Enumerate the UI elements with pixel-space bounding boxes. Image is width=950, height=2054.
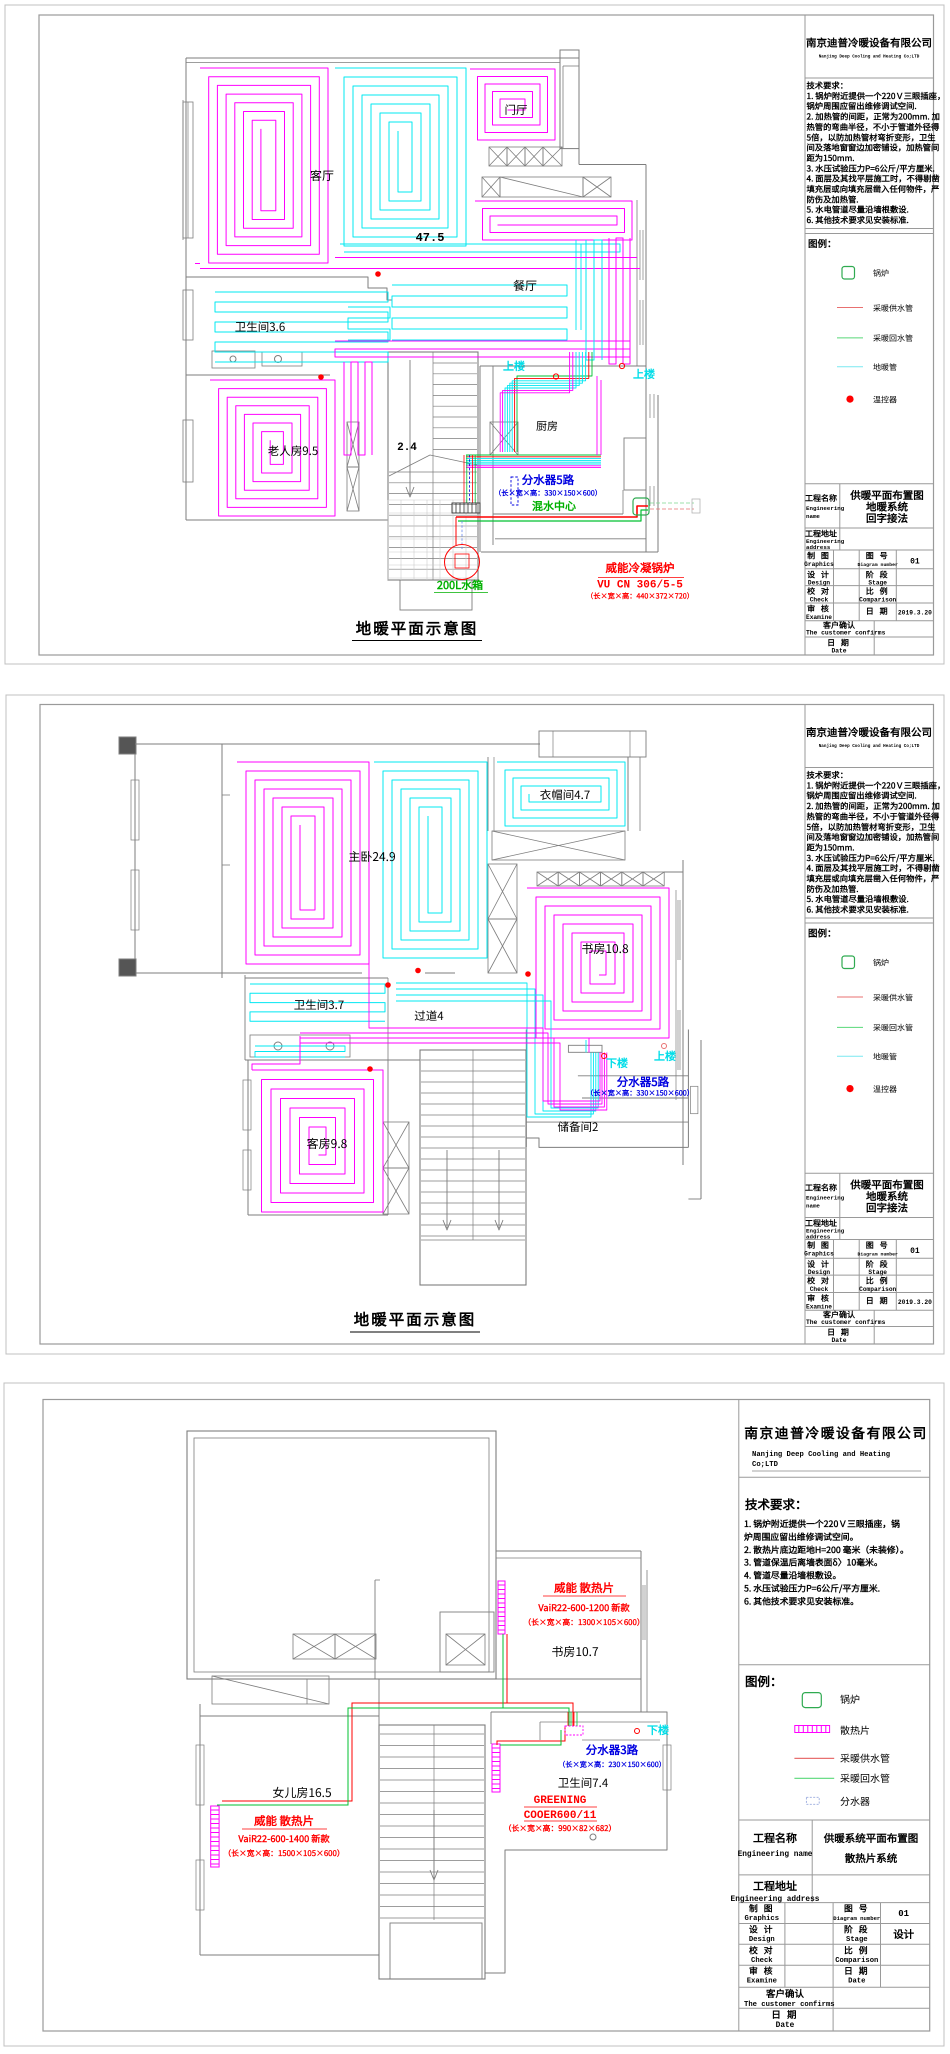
svg-text:6. 其他技术要求见安装标准。: 6. 其他技术要求见安装标准。: [744, 1594, 859, 1607]
svg-text:（长×宽×高：1500×105×600）: （长×宽×高：1500×105×600）: [223, 1848, 344, 1859]
svg-text:回字接法: 回字接法: [866, 1201, 908, 1216]
svg-text:2019.3.20: 2019.3.20: [898, 1299, 932, 1306]
svg-text:Date: Date: [831, 648, 846, 655]
svg-text:制 图: 制 图: [749, 1902, 775, 1915]
svg-text:日 期: 日 期: [771, 2007, 798, 2021]
svg-text:name: name: [806, 513, 820, 520]
svg-text:01: 01: [898, 1909, 909, 1919]
svg-text:锅炉: 锅炉: [840, 1691, 860, 1706]
svg-text:上楼: 上楼: [633, 366, 655, 382]
svg-text:女儿房16.5: 女儿房16.5: [272, 1784, 332, 1801]
svg-text:威能 散热片: 威能 散热片: [554, 1580, 614, 1596]
svg-text:过道4: 过道4: [414, 1008, 444, 1024]
svg-text:地暖平面示意图: 地暖平面示意图: [354, 1308, 477, 1330]
svg-text:上楼: 上楼: [503, 358, 525, 374]
svg-text:分水器5路: 分水器5路: [522, 472, 575, 488]
svg-text:储备间2: 储备间2: [558, 1119, 599, 1135]
svg-text:老人房9.5: 老人房9.5: [268, 443, 318, 459]
svg-text:Check: Check: [810, 597, 829, 604]
svg-text:散热片: 散热片: [840, 1722, 870, 1737]
svg-text:客厅: 客厅: [310, 167, 334, 184]
svg-text:门厅: 门厅: [505, 102, 528, 118]
svg-text:VaiR22-600-1400 新款: VaiR22-600-1400 新款: [237, 1831, 330, 1845]
svg-text:（长×宽×高：330×150×600）: （长×宽×高：330×150×600）: [494, 489, 602, 499]
svg-text:南京迪普冷暖设备有限公司: 南京迪普冷暖设备有限公司: [806, 725, 932, 740]
svg-text:上楼: 上楼: [654, 1048, 676, 1064]
svg-text:温控器: 温控器: [873, 1084, 897, 1095]
svg-text:技术要求：: 技术要求：: [745, 1494, 808, 1513]
svg-text:（长×宽×高：330×150×600）: （长×宽×高：330×150×600）: [586, 1089, 694, 1099]
svg-text:（长×宽×高：440×372×720）: （长×宽×高：440×372×720）: [586, 592, 694, 602]
svg-text:01: 01: [910, 558, 920, 567]
svg-text:2.4: 2.4: [397, 442, 417, 454]
svg-text:供暖系统平面布置图: 供暖系统平面布置图: [823, 1831, 919, 1846]
svg-text:书房10.7: 书房10.7: [551, 1643, 599, 1660]
svg-text:Engineering: Engineering: [806, 1195, 845, 1202]
svg-text:校 对: 校 对: [749, 1943, 775, 1956]
svg-text:采暖供水管: 采暖供水管: [873, 993, 913, 1004]
svg-text:Comparison: Comparison: [859, 597, 896, 604]
svg-text:图例：: 图例：: [745, 1671, 783, 1690]
svg-text:餐厅: 餐厅: [513, 277, 537, 294]
svg-text:3. 管道保温后离墙表面δ〉10毫米。: 3. 管道保温后离墙表面δ〉10毫米。: [744, 1556, 883, 1569]
svg-text:下楼: 下楼: [647, 1722, 669, 1738]
svg-text:设计: 设计: [893, 1927, 914, 1942]
svg-text:The customer confirms: The customer confirms: [806, 1319, 886, 1326]
svg-text:200L水箱: 200L水箱: [437, 577, 483, 593]
svg-text:工程名称: 工程名称: [805, 493, 837, 504]
svg-text:图 号: 图 号: [844, 1902, 870, 1915]
svg-text:衣帽间4.7: 衣帽间4.7: [540, 787, 590, 803]
svg-text:VU CN 306/5-5: VU CN 306/5-5: [597, 580, 683, 592]
svg-text:地暖管: 地暖管: [873, 362, 897, 373]
svg-text:1. 锅炉附近提供一个220Ｖ三眼插座，锅: 1. 锅炉附近提供一个220Ｖ三眼插座，锅: [744, 1517, 900, 1530]
svg-text:设 计: 设 计: [807, 1259, 831, 1270]
svg-text:图 号: 图 号: [866, 551, 890, 562]
svg-text:Graphics: Graphics: [804, 561, 834, 568]
svg-text:图 号: 图 号: [866, 1240, 890, 1251]
svg-text:卫生间3.6: 卫生间3.6: [235, 319, 285, 335]
svg-text:分水器: 分水器: [840, 1793, 870, 1808]
svg-text:采暖供水管: 采暖供水管: [840, 1750, 890, 1765]
svg-text:阶 段: 阶 段: [844, 1923, 870, 1936]
svg-text:2019.3.20: 2019.3.20: [898, 610, 932, 617]
svg-text:Date: Date: [831, 1337, 846, 1344]
svg-text:Diagram number: Diagram number: [858, 562, 898, 568]
svg-text:工程名称: 工程名称: [805, 1183, 837, 1194]
svg-text:客户确认: 客户确认: [765, 1986, 805, 2000]
svg-text:审 核: 审 核: [807, 604, 831, 615]
svg-text:（长×宽×高：230×150×600）: （长×宽×高：230×150×600）: [558, 1760, 666, 1770]
svg-text:Date: Date: [776, 2022, 795, 2030]
svg-text:书房10.8: 书房10.8: [581, 940, 629, 957]
svg-text:比 例: 比 例: [866, 1276, 890, 1287]
svg-text:回字接法: 回字接法: [866, 511, 908, 526]
svg-text:温控器: 温控器: [873, 395, 897, 406]
svg-text:审 核: 审 核: [749, 1964, 775, 1977]
svg-text:南京迪普冷暖设备有限公司: 南京迪普冷暖设备有限公司: [744, 1422, 928, 1442]
svg-text:卫生间3.7: 卫生间3.7: [294, 997, 344, 1013]
svg-text:采暖供水管: 采暖供水管: [873, 303, 913, 314]
svg-text:GREENING: GREENING: [534, 1795, 587, 1807]
svg-text:2. 散热片底边距地H=200 毫米（未装修）。: 2. 散热片底边距地H=200 毫米（未装修）。: [744, 1543, 909, 1556]
svg-text:Check: Check: [810, 1286, 829, 1293]
svg-text:散热片系统: 散热片系统: [845, 1851, 898, 1866]
svg-text:日 期: 日 期: [866, 606, 890, 617]
svg-text:锅炉: 锅炉: [873, 958, 889, 969]
svg-text:校 对: 校 对: [807, 586, 831, 597]
svg-text:比 例: 比 例: [866, 586, 890, 597]
svg-text:Co;LTD: Co;LTD: [752, 1461, 779, 1469]
svg-text:Engineering name: Engineering name: [738, 1851, 813, 1859]
svg-text:校 对: 校 对: [807, 1276, 831, 1287]
svg-text:地暖管: 地暖管: [873, 1052, 897, 1063]
svg-text:下楼: 下楼: [606, 1055, 628, 1071]
svg-text:Nanjing Deep Cooling and Heati: Nanjing Deep Cooling and Heating: [752, 1451, 890, 1459]
svg-text:制 图: 制 图: [807, 551, 831, 562]
svg-text:威能冷凝锅炉: 威能冷凝锅炉: [606, 560, 675, 576]
svg-text:VaiR22-600-1200 新款: VaiR22-600-1200 新款: [537, 1600, 630, 1614]
svg-text:锅炉: 锅炉: [873, 268, 889, 279]
svg-text:制 图: 制 图: [807, 1240, 831, 1251]
svg-text:厨房: 厨房: [536, 418, 558, 434]
svg-text:Comparison: Comparison: [859, 1286, 896, 1293]
svg-text:4. 管道尽量沿墙根敷设。: 4. 管道尽量沿墙根敷设。: [743, 1569, 841, 1582]
svg-text:客房9.8: 客房9.8: [307, 1135, 348, 1152]
svg-text:Diagram number: Diagram number: [858, 1252, 898, 1258]
svg-text:Graphics: Graphics: [804, 1251, 834, 1258]
svg-text:日 期: 日 期: [844, 1964, 870, 1977]
svg-text:The customer confirms: The customer confirms: [806, 630, 886, 637]
svg-text:地暖平面示意图: 地暖平面示意图: [356, 617, 479, 639]
svg-text:Engineering address: Engineering address: [731, 1896, 820, 1904]
svg-text:混水中心: 混水中心: [532, 498, 576, 514]
svg-text:主卧24.9: 主卧24.9: [348, 848, 395, 865]
svg-text:采暖回水管: 采暖回水管: [840, 1770, 890, 1785]
svg-text:设 计: 设 计: [807, 569, 831, 580]
svg-text:Date: Date: [848, 1978, 865, 1986]
svg-text:6. 其他技术要求见安装标准.: 6. 其他技术要求见安装标准.: [807, 214, 909, 226]
svg-text:6. 其他技术要求见安装标准.: 6. 其他技术要求见安装标准.: [807, 904, 909, 916]
svg-text:Diagram number: Diagram number: [833, 1915, 880, 1922]
svg-text:工程地址: 工程地址: [753, 1878, 797, 1894]
svg-text:Nanjing Deep Cooling and Heati: Nanjing Deep Cooling and Heating Co;LTD: [819, 55, 920, 60]
svg-text:图例：: 图例：: [808, 236, 837, 250]
svg-text:Nanjing Deep Cooling and Heati: Nanjing Deep Cooling and Heating Co;LTD: [819, 744, 920, 749]
svg-text:炉周围应留出维修调试空间。: 炉周围应留出维修调试空间。: [744, 1530, 858, 1543]
svg-text:name: name: [806, 1203, 820, 1210]
svg-text:日 期: 日 期: [866, 1296, 890, 1307]
svg-text:南京迪普冷暖设备有限公司: 南京迪普冷暖设备有限公司: [806, 36, 932, 51]
svg-text:阶 段: 阶 段: [866, 569, 890, 580]
svg-text:卫生间7.4: 卫生间7.4: [558, 1775, 609, 1791]
svg-text:设 计: 设 计: [749, 1923, 775, 1936]
svg-text:比 例: 比 例: [844, 1943, 870, 1956]
svg-text:（长×宽×高：1300×105×600）: （长×宽×高：1300×105×600）: [523, 1617, 644, 1628]
svg-text:47.5: 47.5: [416, 231, 445, 245]
svg-text:Examine: Examine: [747, 1978, 777, 1986]
svg-text:图例：: 图例：: [808, 926, 837, 940]
svg-text:Engineering: Engineering: [806, 505, 845, 512]
svg-text:01: 01: [910, 1247, 920, 1256]
svg-text:（长×宽×高：990×82×682）: （长×宽×高：990×82×682）: [504, 1823, 617, 1834]
svg-text:审 核: 审 核: [807, 1293, 831, 1304]
svg-text:阶 段: 阶 段: [866, 1259, 890, 1270]
svg-text:5. 水压试验压力P=6公斤/平方厘米.: 5. 水压试验压力P=6公斤/平方厘米.: [743, 1582, 880, 1595]
svg-text:采暖回水管: 采暖回水管: [873, 333, 913, 344]
svg-text:工程名称: 工程名称: [753, 1830, 797, 1846]
svg-text:分水器3路: 分水器3路: [586, 1742, 639, 1758]
svg-text:采暖回水管: 采暖回水管: [873, 1023, 913, 1034]
svg-text:COOER600/11: COOER600/11: [524, 1810, 597, 1822]
svg-text:威能 散热片: 威能 散热片: [254, 1813, 314, 1829]
